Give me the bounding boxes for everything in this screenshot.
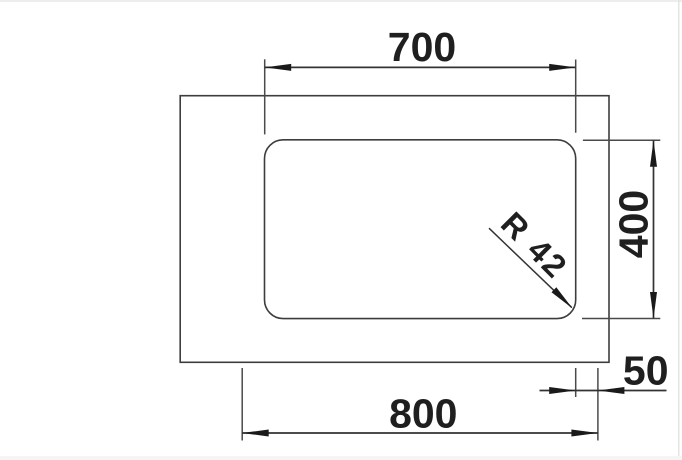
svg-text:800: 800: [389, 391, 457, 437]
svg-text:700: 700: [388, 24, 456, 70]
svg-text:50: 50: [623, 348, 669, 394]
svg-text:400: 400: [611, 190, 657, 258]
